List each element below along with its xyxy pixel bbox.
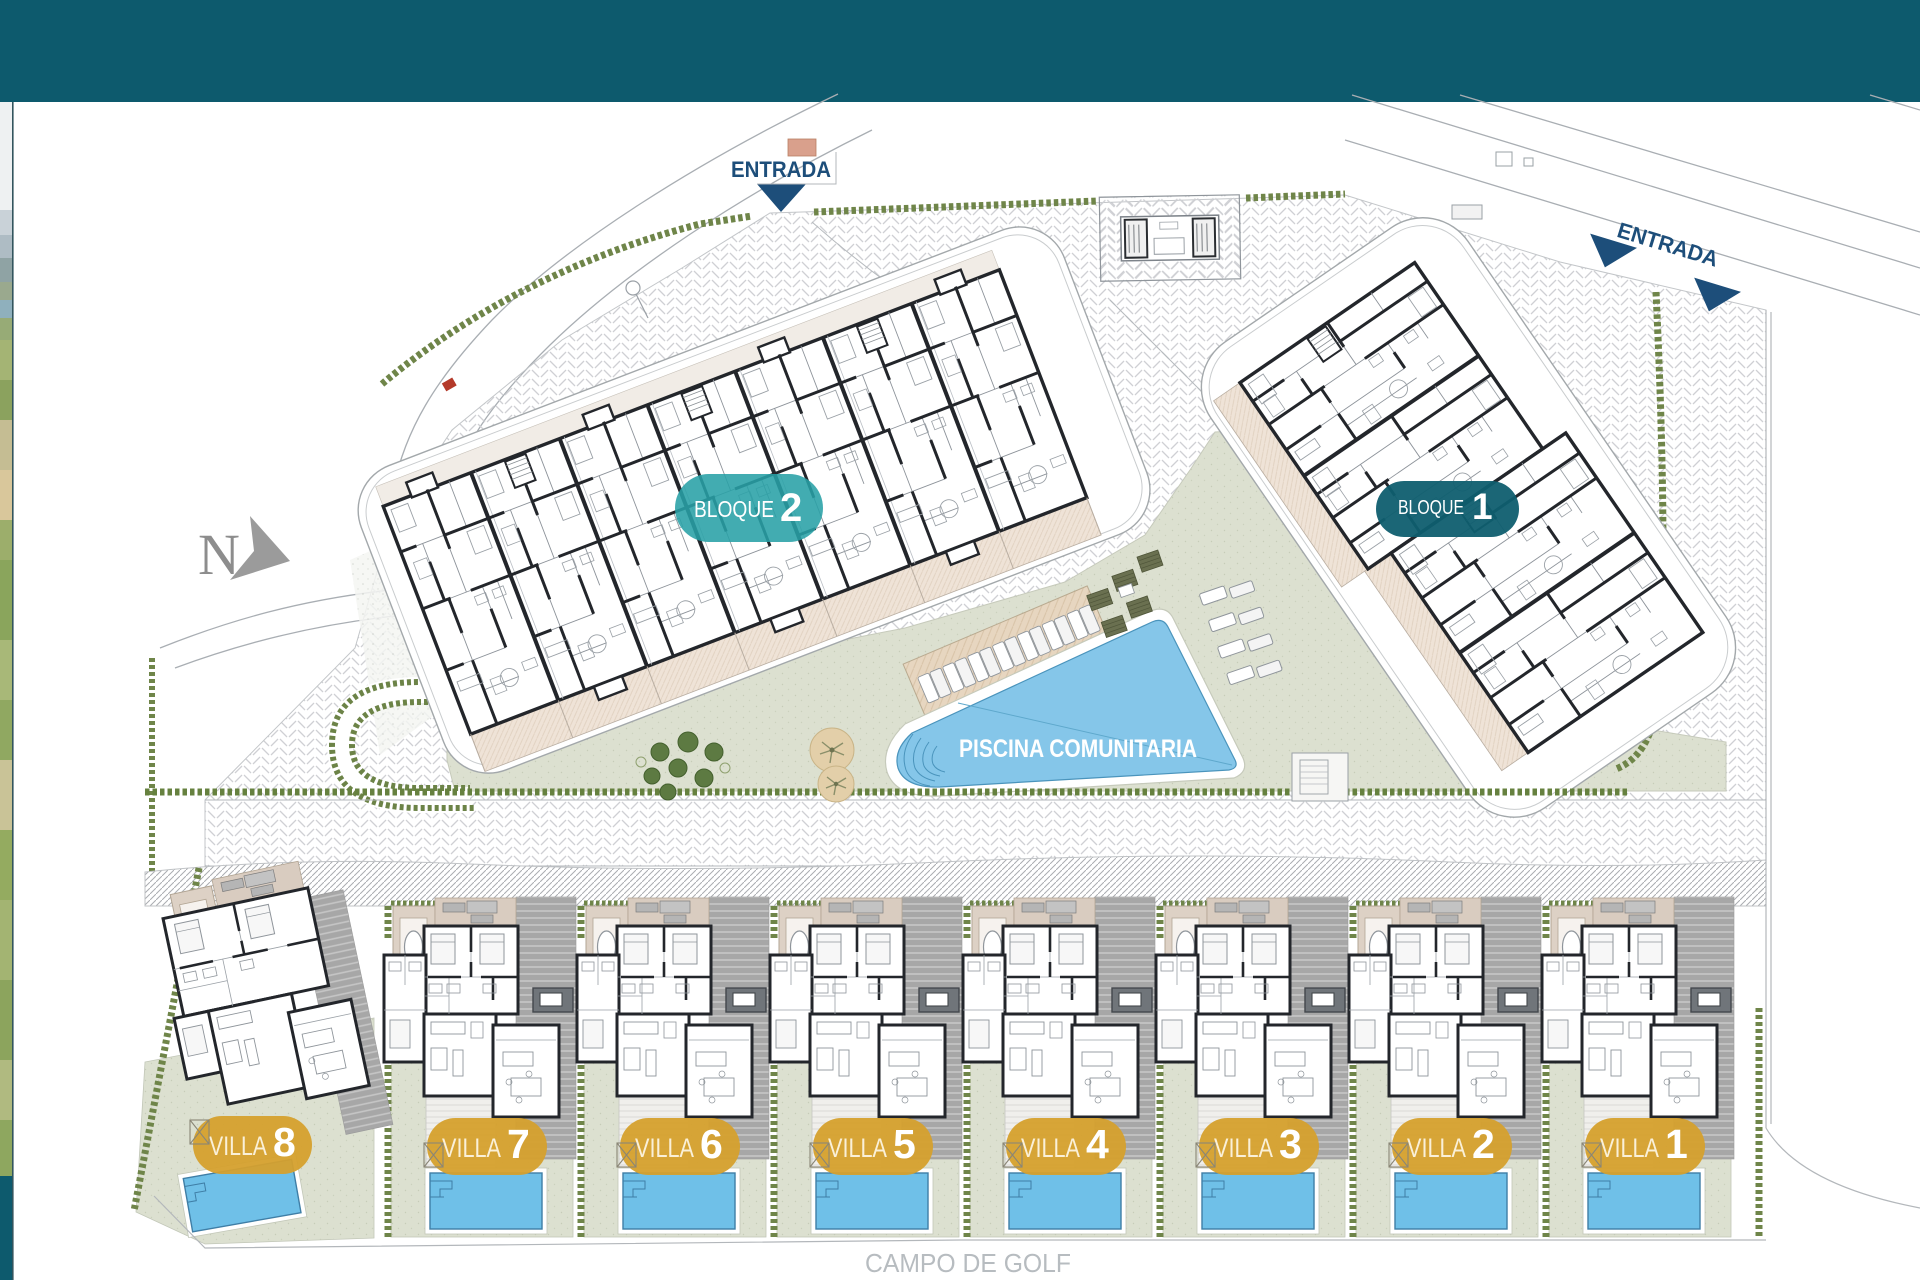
svg-text:ENTRADA: ENTRADA bbox=[731, 157, 831, 182]
svg-text:VILLA: VILLA bbox=[1021, 1133, 1080, 1163]
svg-text:2: 2 bbox=[780, 486, 802, 530]
svg-text:4: 4 bbox=[1086, 1121, 1109, 1167]
svg-text:8: 8 bbox=[273, 1119, 296, 1165]
svg-text:VILLA: VILLA bbox=[1600, 1133, 1659, 1163]
svg-text:2: 2 bbox=[1472, 1121, 1495, 1167]
svg-text:3: 3 bbox=[1279, 1121, 1302, 1167]
svg-text:1: 1 bbox=[1472, 486, 1493, 527]
svg-text:1: 1 bbox=[1665, 1121, 1688, 1167]
svg-text:VILLA: VILLA bbox=[442, 1133, 501, 1163]
svg-text:7: 7 bbox=[507, 1121, 530, 1167]
svg-text:5: 5 bbox=[893, 1121, 916, 1167]
svg-text:BLOQUE: BLOQUE bbox=[1398, 497, 1464, 519]
svg-text:PISCINA COMUNITARIA: PISCINA COMUNITARIA bbox=[959, 735, 1197, 763]
svg-text:6: 6 bbox=[700, 1121, 723, 1167]
svg-text:VILLA: VILLA bbox=[1407, 1133, 1466, 1163]
svg-text:VILLA: VILLA bbox=[1214, 1133, 1273, 1163]
svg-text:CAMPO DE GOLF: CAMPO DE GOLF bbox=[865, 1248, 1071, 1278]
svg-text:VILLA: VILLA bbox=[209, 1131, 267, 1161]
svg-text:BLOQUE: BLOQUE bbox=[694, 496, 774, 522]
svg-text:VILLA: VILLA bbox=[635, 1133, 694, 1163]
svg-text:VILLA: VILLA bbox=[828, 1133, 887, 1163]
